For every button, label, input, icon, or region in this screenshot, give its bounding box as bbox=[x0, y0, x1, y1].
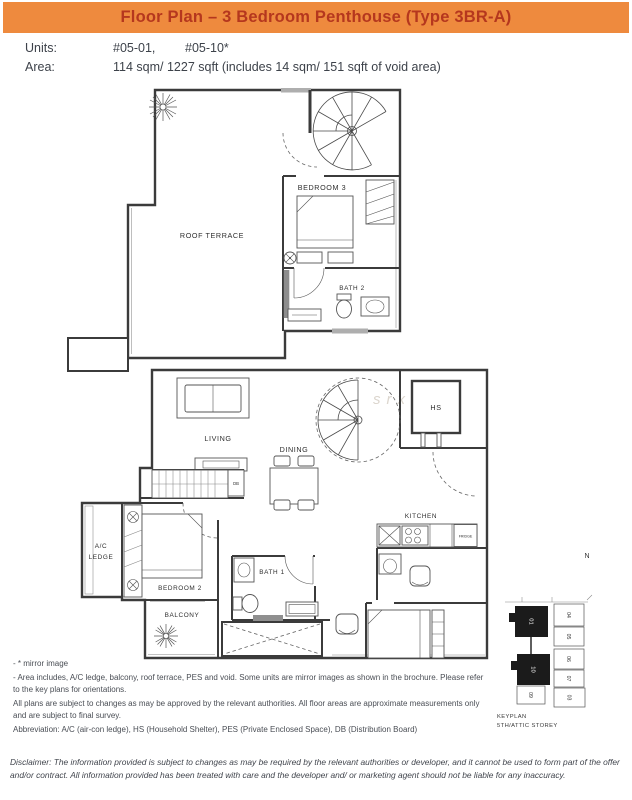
keyplan-caption-2: 5TH/ATTIC STOREY bbox=[497, 723, 558, 729]
plant-icon-balcony bbox=[154, 624, 178, 648]
bed-bedroom2 bbox=[142, 514, 202, 578]
unit-info: Units: #05-01, #05-10* Area: 114 sqm/ 12… bbox=[25, 41, 441, 79]
sink-bath2 bbox=[361, 297, 389, 316]
svg-text:09: 09 bbox=[527, 692, 533, 698]
unit-number-secondary: #05-10* bbox=[185, 41, 229, 55]
plant-icon-terrace bbox=[149, 93, 177, 121]
svg-text:04: 04 bbox=[565, 612, 571, 618]
toilet-bath2 bbox=[337, 294, 352, 318]
upper-floor-plan: BEDROOM 3 BATH 2 bbox=[60, 84, 420, 376]
notes: - * mirror image - Area includes, A/C le… bbox=[13, 658, 491, 738]
svg-text:03: 03 bbox=[566, 695, 572, 701]
watermark: srx bbox=[373, 391, 411, 408]
room-label-fridge: FRIDGE bbox=[459, 535, 473, 539]
area-row: Area: 114 sqm/ 1227 sqft (includes 14 sq… bbox=[25, 60, 441, 74]
svg-text:05: 05 bbox=[565, 634, 571, 640]
note-abbreviation: Abbreviation: A/C (air-con ledge), HS (H… bbox=[13, 724, 491, 736]
room-label-bath2: BATH 2 bbox=[339, 285, 365, 292]
title-banner: Floor Plan – 3 Bedroom Penthouse (Type 3… bbox=[3, 2, 629, 33]
sink-bath1 bbox=[234, 558, 254, 582]
stairs-to-attic bbox=[152, 470, 228, 498]
toilet-bath1 bbox=[233, 595, 258, 613]
wardrobe-master bbox=[432, 610, 444, 658]
area-label: Area: bbox=[25, 60, 113, 74]
area-value: 114 sqm/ 1227 sqft (includes 14 sqm/ 151… bbox=[113, 60, 441, 74]
north-indicator: N bbox=[584, 553, 589, 560]
note-mirror: - * mirror image bbox=[13, 658, 491, 670]
room-label-living: LIVING bbox=[204, 434, 231, 443]
page-title: Floor Plan – 3 Bedroom Penthouse (Type 3… bbox=[121, 8, 512, 27]
floor-plan-page: Floor Plan – 3 Bedroom Penthouse (Type 3… bbox=[0, 0, 632, 800]
armchair bbox=[336, 614, 358, 634]
room-label-kitchen: KITCHEN bbox=[405, 513, 437, 520]
units-row: Units: #05-01, #05-10* bbox=[25, 41, 441, 55]
disclaimer: Disclaimer: The information provided is … bbox=[10, 756, 624, 781]
note-plans-subject: All plans are subject to changes as may … bbox=[13, 698, 491, 722]
room-label-ac: A/C bbox=[95, 543, 107, 550]
note-area-includes: - Area includes, A/C ledge, balcony, roo… bbox=[13, 672, 491, 696]
keyplan-unit-10: 10 bbox=[511, 654, 550, 685]
bed-master bbox=[368, 610, 430, 658]
room-label-db: DB bbox=[233, 481, 239, 486]
key-plan: N 01 10 04 05 06 07 03 09 KEYPLAN 5TH/AT… bbox=[492, 540, 632, 740]
attic-outer-wall bbox=[128, 90, 400, 358]
units-label: Units: bbox=[25, 41, 113, 55]
wardrobe-bedroom3 bbox=[366, 180, 394, 224]
keyplan-caption-1: KEYPLAN bbox=[497, 714, 527, 720]
unit-number-primary: #05-01, bbox=[113, 41, 185, 55]
ceiling-fan-icon bbox=[284, 252, 296, 264]
wardrobe-bedroom2 bbox=[124, 505, 142, 597]
room-label-bedroom2: BEDROOM 2 bbox=[158, 585, 202, 592]
shower-bath2 bbox=[288, 309, 321, 321]
room-label-bath1: BATH 1 bbox=[259, 569, 285, 576]
room-label-ac-ledge: LEDGE bbox=[89, 554, 114, 561]
svg-text:10: 10 bbox=[530, 666, 536, 672]
room-label-hs: HS bbox=[430, 403, 441, 412]
shower-bath1 bbox=[286, 602, 318, 616]
svg-text:07: 07 bbox=[565, 676, 571, 682]
lower-floor-plan: srx HS LIVING bbox=[70, 358, 495, 664]
bath-mat bbox=[253, 615, 283, 621]
room-label-bedroom3: BEDROOM 3 bbox=[298, 183, 347, 192]
svg-text:01: 01 bbox=[528, 618, 534, 624]
sofa bbox=[177, 378, 249, 418]
room-label-roof-terrace: ROOF TERRACE bbox=[180, 231, 244, 240]
disclaimer-text: Disclaimer: The information provided is … bbox=[10, 756, 624, 781]
room-label-balcony: BALCONY bbox=[165, 612, 200, 619]
svg-text:06: 06 bbox=[565, 656, 571, 662]
keyplan-unit-01: 01 bbox=[509, 606, 548, 637]
room-label-dining: DINING bbox=[280, 445, 309, 454]
